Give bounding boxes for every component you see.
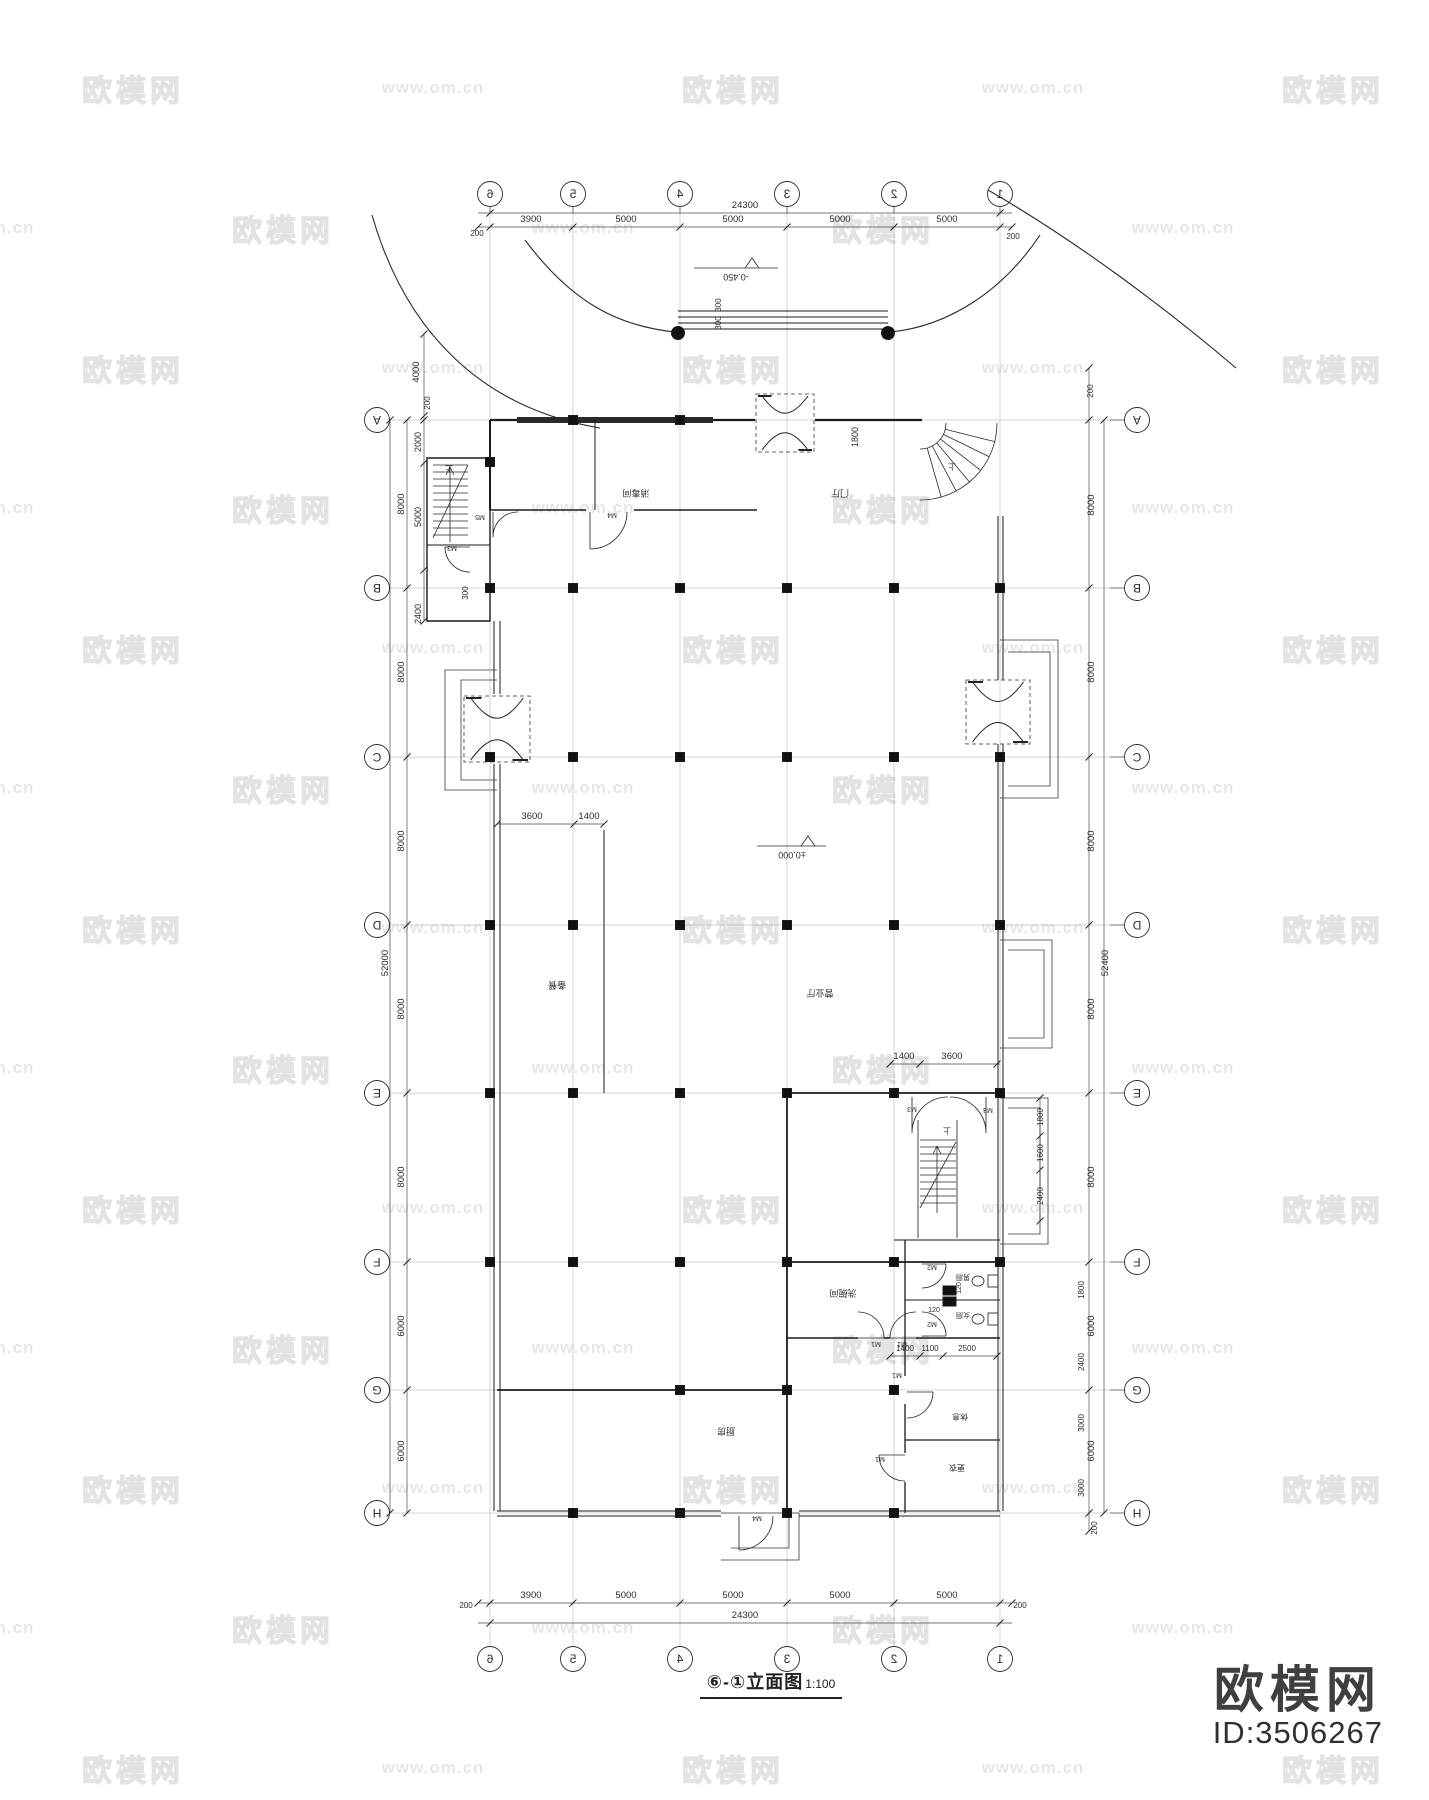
svg-text:4: 4 (676, 187, 683, 201)
round-column (672, 327, 685, 340)
svg-text:8000: 8000 (1086, 661, 1097, 682)
svg-text:上: 上 (943, 1126, 951, 1135)
svg-text:6: 6 (486, 187, 493, 201)
svg-text:2400: 2400 (413, 604, 423, 624)
round-column (882, 327, 895, 340)
bay-windows (445, 640, 1058, 1560)
drawing-scale: 1:100 (805, 1677, 835, 1691)
svg-text:营业厅: 营业厅 (806, 988, 833, 999)
equipment-box (943, 1286, 956, 1295)
svg-text:1800: 1800 (1077, 1281, 1086, 1299)
svg-text:1400: 1400 (578, 811, 599, 822)
svg-text:M1: M1 (875, 1455, 885, 1462)
svg-text:上: 上 (445, 464, 453, 473)
svg-text:4000: 4000 (411, 361, 422, 382)
svg-text:A: A (373, 413, 381, 427)
floor-plan-canvas: 665544332211AABBCCDDEEFFGGHH 24300390050… (0, 0, 1429, 1800)
svg-text:3600: 3600 (941, 1051, 962, 1062)
revolving-door-symbols (464, 394, 1030, 762)
svg-text:1600: 1600 (1036, 1144, 1045, 1162)
svg-text:女厕: 女厕 (956, 1311, 970, 1320)
svg-text:6000: 6000 (396, 1315, 407, 1336)
svg-text:5000: 5000 (722, 214, 743, 225)
axis-bubbles: 665544332211AABBCCDDEEFFGGHH (365, 182, 1150, 1672)
svg-text:6000: 6000 (396, 1440, 407, 1461)
svg-text:门厅: 门厅 (831, 488, 849, 499)
svg-text:3900: 3900 (520, 1590, 541, 1601)
svg-text:5000: 5000 (615, 1590, 636, 1601)
svg-text:6000: 6000 (1086, 1440, 1097, 1461)
svg-text:5000: 5000 (936, 214, 957, 225)
site-logo: 欧模网 ID:3506267 (1213, 1664, 1383, 1749)
svg-text:8000: 8000 (396, 661, 407, 682)
svg-text:8000: 8000 (1086, 998, 1097, 1019)
svg-text:52400: 52400 (1100, 950, 1111, 976)
svg-text:5000: 5000 (615, 214, 636, 225)
svg-text:M4: M4 (607, 511, 617, 518)
svg-text:G: G (1132, 1383, 1141, 1397)
stairs (433, 423, 997, 1213)
svg-text:1400: 1400 (893, 1051, 914, 1062)
svg-text:E: E (1133, 1086, 1141, 1100)
svg-text:5: 5 (569, 1652, 576, 1666)
annotation-texts: 2430039005000500050005000200200390050005… (380, 200, 1111, 1621)
equipment-box (943, 1297, 956, 1306)
svg-text:120: 120 (928, 1307, 940, 1314)
svg-text:3900: 3900 (520, 214, 541, 225)
drawing-title-text: ⑥-①立面图 (707, 1672, 803, 1692)
svg-text:52000: 52000 (380, 950, 391, 976)
svg-text:M1: M1 (892, 1371, 902, 1378)
svg-text:5000: 5000 (413, 507, 423, 527)
svg-text:男厕: 男厕 (956, 1273, 970, 1281)
svg-text:D: D (1132, 918, 1141, 932)
svg-text:200: 200 (459, 1601, 473, 1610)
svg-text:M4: M4 (752, 1514, 762, 1521)
entrance-steps (678, 311, 888, 329)
svg-text:8000: 8000 (396, 1166, 407, 1187)
svg-text:H: H (1133, 1506, 1142, 1520)
svg-text:休息: 休息 (952, 1412, 968, 1422)
svg-text:2: 2 (890, 1652, 897, 1666)
svg-text:M1: M1 (871, 1340, 881, 1347)
svg-text:1800: 1800 (1036, 1108, 1045, 1126)
svg-text:G: G (372, 1383, 381, 1397)
cad-drawing-page: 欧模网www.om.cn欧模网www.om.cn欧模网www.om.cn欧模网w… (0, 0, 1429, 1800)
svg-text:M2: M2 (927, 1320, 937, 1327)
svg-text:8000: 8000 (396, 998, 407, 1019)
svg-text:2: 2 (890, 187, 897, 201)
svg-text:F: F (1133, 1255, 1140, 1269)
svg-text:E: E (373, 1086, 381, 1100)
svg-text:M2: M2 (927, 1263, 937, 1270)
svg-text:B: B (373, 581, 381, 595)
svg-text:24300: 24300 (732, 200, 758, 211)
svg-text:2400: 2400 (1036, 1187, 1045, 1205)
svg-text:上: 上 (948, 462, 956, 471)
svg-text:3000: 3000 (1077, 1479, 1086, 1497)
svg-text:5000: 5000 (936, 1590, 957, 1601)
svg-text:24300: 24300 (732, 1610, 758, 1621)
svg-text:B: B (1133, 581, 1141, 595)
svg-text:M1: M1 (897, 1340, 907, 1347)
svg-text:-0.450: -0.450 (723, 272, 749, 282)
svg-text:200: 200 (1013, 1601, 1027, 1610)
svg-text:3: 3 (783, 187, 790, 201)
svg-text:200: 200 (1090, 1521, 1099, 1535)
svg-text:F: F (373, 1255, 380, 1269)
svg-text:5: 5 (569, 187, 576, 201)
wall-lines (427, 420, 1003, 1516)
site-logo-brand: 欧模网 (1213, 1664, 1383, 1717)
model-id: ID:3506267 (1213, 1717, 1383, 1750)
svg-text:更衣: 更衣 (949, 1463, 965, 1473)
svg-text:2000: 2000 (413, 432, 423, 452)
svg-text:M3: M3 (447, 544, 457, 551)
entrance-arc-curves (372, 190, 1236, 428)
svg-text:C: C (1132, 750, 1141, 764)
svg-text:C: C (372, 750, 381, 764)
svg-text:备餐: 备餐 (548, 980, 566, 991)
svg-text:2400: 2400 (1077, 1353, 1086, 1371)
svg-text:200: 200 (470, 229, 484, 238)
svg-text:300: 300 (461, 586, 470, 600)
svg-text:200: 200 (423, 396, 432, 410)
svg-text:200: 200 (1006, 232, 1020, 241)
door-swings (445, 512, 986, 1550)
svg-text:厨房: 厨房 (717, 1426, 735, 1437)
level-markers (694, 258, 826, 846)
svg-text:3000: 3000 (1077, 1414, 1086, 1432)
plan-geometry (372, 190, 1236, 1560)
svg-text:2500: 2500 (958, 1344, 976, 1353)
svg-text:洗碗间: 洗碗间 (829, 1288, 856, 1299)
svg-text:8000: 8000 (1086, 494, 1097, 515)
drawing-title: ⑥-①立面图1:100 (700, 1668, 842, 1699)
svg-text:6: 6 (486, 1652, 493, 1666)
svg-text:D: D (372, 918, 381, 932)
svg-text:M5: M5 (475, 513, 485, 520)
svg-text:8000: 8000 (1086, 830, 1097, 851)
svg-text:120: 120 (956, 1282, 963, 1294)
svg-text:4: 4 (676, 1652, 683, 1666)
svg-text:1: 1 (996, 1652, 1003, 1666)
svg-text:5000: 5000 (829, 214, 850, 225)
svg-text:5000: 5000 (722, 1590, 743, 1601)
svg-text:5000: 5000 (829, 1590, 850, 1601)
svg-text:M3: M3 (907, 1105, 917, 1112)
svg-text:300: 300 (714, 298, 723, 312)
svg-text:200: 200 (1086, 384, 1095, 398)
svg-text:1800: 1800 (850, 427, 860, 447)
svg-text:M3: M3 (983, 1106, 993, 1113)
svg-text:消毒间: 消毒间 (622, 488, 649, 499)
svg-text:6000: 6000 (1086, 1315, 1097, 1336)
svg-text:8000: 8000 (396, 830, 407, 851)
svg-text:1100: 1100 (921, 1344, 939, 1353)
svg-text:A: A (1133, 413, 1141, 427)
svg-text:3: 3 (783, 1652, 790, 1666)
svg-text:8000: 8000 (396, 493, 407, 514)
svg-text:8000: 8000 (1086, 1166, 1097, 1187)
svg-text:300: 300 (714, 316, 723, 330)
svg-text:3600: 3600 (521, 811, 542, 822)
svg-text:1: 1 (996, 187, 1003, 201)
svg-text:H: H (373, 1506, 382, 1520)
svg-text:±0.000: ±0.000 (778, 850, 805, 860)
